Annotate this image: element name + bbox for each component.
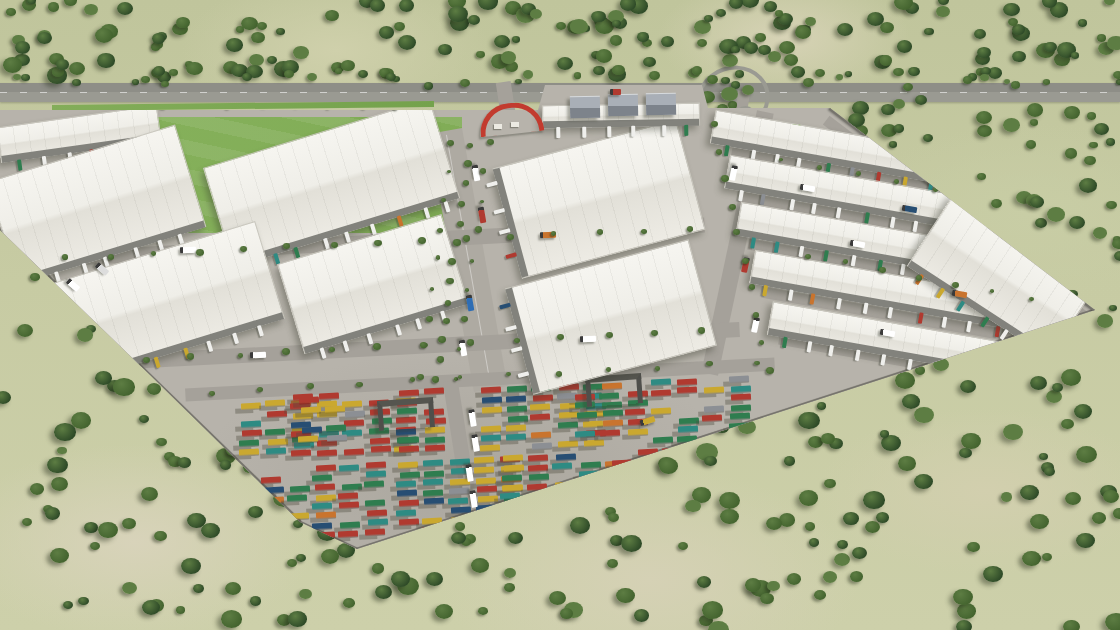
gate-booth [511, 122, 519, 127]
entrance-overlay-layer [0, 0, 1120, 630]
entrance-arch [478, 100, 545, 138]
gate-booth [494, 124, 502, 129]
aerial-industrial-park-render [0, 0, 1120, 630]
